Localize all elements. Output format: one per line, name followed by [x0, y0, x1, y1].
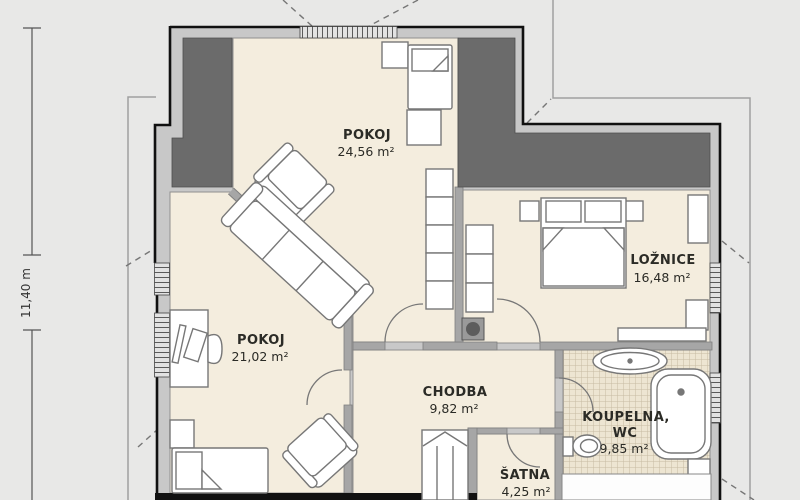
label-koupelna-area: 9,85 m² [600, 441, 649, 456]
label-pokoj21-name: POKOJ [237, 333, 285, 348]
hall-wardrobe [422, 430, 468, 500]
window-right-loznice [710, 263, 721, 313]
wardrobe [688, 195, 708, 243]
label-pokoj24-name: POKOJ [343, 128, 391, 143]
nightstand-left [520, 201, 539, 221]
sink [593, 348, 667, 374]
bed-single [408, 45, 452, 109]
label-satna-name: ŠATNA [500, 467, 550, 483]
window-top [300, 27, 397, 39]
label-chodba-name: CHODBA [423, 385, 488, 400]
wardrobe-column [426, 169, 453, 309]
nightstand [382, 42, 408, 68]
floor-plan: POKOJ 24,56 m² POKOJ 21,02 m² LOŽNICE 16… [0, 0, 800, 500]
toilet [563, 435, 601, 457]
dresser [686, 300, 708, 330]
bath-counter [562, 474, 711, 500]
nightstand [170, 420, 194, 448]
bed-single [172, 448, 268, 493]
nightstand-right [624, 201, 643, 221]
label-pokoj21-area: 21,02 m² [232, 349, 289, 364]
label-koupelna-name: KOUPELNA, [582, 410, 670, 425]
stove [462, 318, 484, 340]
chest [407, 110, 441, 145]
floor-plan-page: POKOJ 24,56 m² POKOJ 21,02 m² LOŽNICE 16… [0, 0, 800, 500]
shelf-column [466, 225, 493, 312]
desk [170, 310, 208, 387]
desk-chair [208, 335, 222, 364]
label-pokoj24-area: 24,56 m² [338, 144, 395, 159]
label-loznice-area: 16,48 m² [634, 270, 691, 285]
label-loznice-name: LOŽNICE [630, 252, 695, 268]
label-koupelna-name2: WC [613, 426, 638, 441]
label-chodba-area: 9,82 m² [430, 401, 479, 416]
furniture-chodba [422, 430, 468, 500]
label-satna-area: 4,25 m² [502, 484, 551, 499]
bed-double [541, 198, 626, 288]
bench [618, 328, 706, 341]
window-left-1 [155, 263, 170, 295]
window-left-2 [155, 313, 170, 377]
dimension-label: 11,40 m [19, 268, 33, 318]
